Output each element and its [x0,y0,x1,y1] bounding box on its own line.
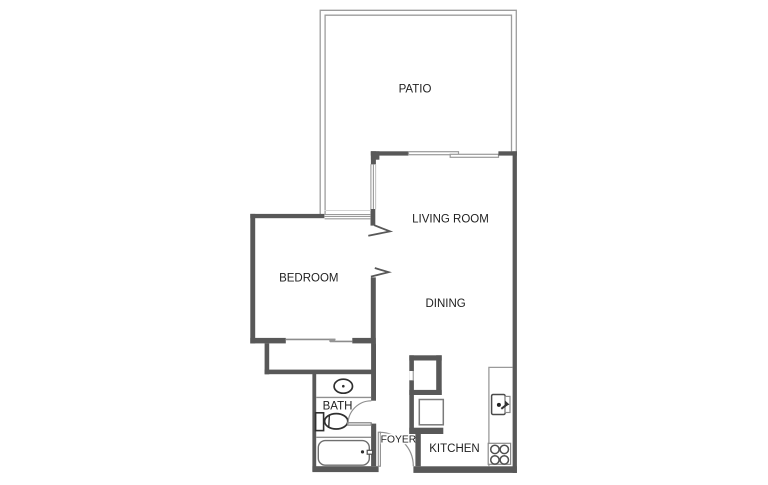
svg-text:BEDROOM: BEDROOM [279,272,338,284]
svg-text:DINING: DINING [425,298,465,310]
svg-text:FOYER: FOYER [381,435,416,446]
svg-text:BATH: BATH [323,400,353,412]
svg-text:PATIO: PATIO [399,84,432,96]
svg-text:KITCHEN: KITCHEN [429,443,479,455]
svg-text:LIVING ROOM: LIVING ROOM [412,213,489,225]
